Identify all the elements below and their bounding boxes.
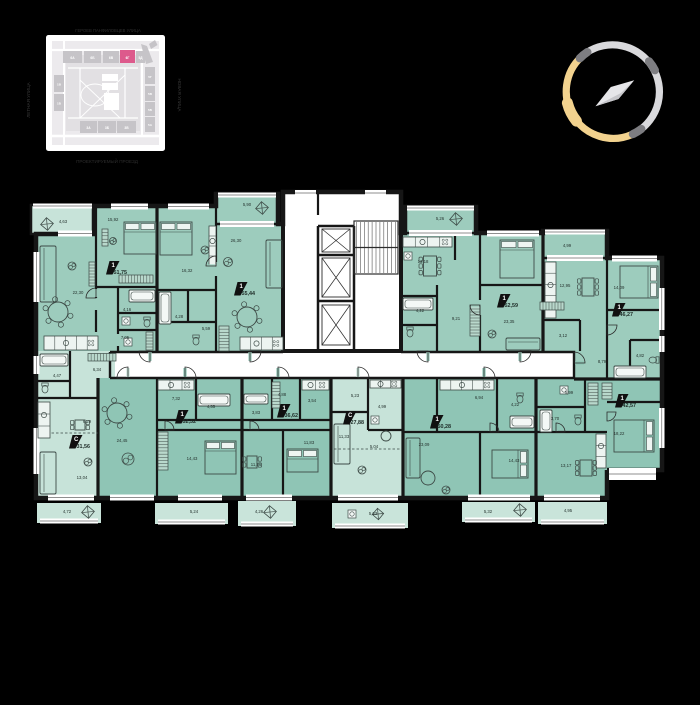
svg-text:ПРОЕКТИРУЕМЫЙ ПРОЕЗД: ПРОЕКТИРУЕМЫЙ ПРОЕЗД [76,157,139,164]
svg-text:С: С [348,413,353,419]
svg-text:3Б: 3Б [105,126,110,130]
svg-text:23,35: 23,35 [504,319,515,324]
svg-text:23,09: 23,09 [419,442,430,447]
svg-text:5,59: 5,59 [202,326,211,331]
svg-text:3А: 3А [86,126,91,130]
svg-text:16,32: 16,32 [182,268,193,273]
svg-text:13,04: 13,04 [77,475,88,480]
svg-text:5,26: 5,26 [436,216,445,221]
svg-text:13,18: 13,18 [418,259,429,264]
svg-text:ЛЕТНАЯ УЛИЦА: ЛЕТНАЯ УЛИЦА [26,81,31,117]
svg-text:5Г: 5Г [148,75,152,79]
svg-text:5,32: 5,32 [484,509,493,514]
svg-text:4,26: 4,26 [255,509,264,514]
svg-text:4,22: 4,22 [416,308,425,313]
svg-text:8,79: 8,79 [598,359,607,364]
svg-text:55,44: 55,44 [242,291,256,297]
svg-text:9,21: 9,21 [452,316,461,321]
svg-text:4,72: 4,72 [63,509,72,514]
svg-text:5,90: 5,90 [243,202,252,207]
svg-text:5,99: 5,99 [565,390,574,395]
svg-text:6Б: 6Б [90,56,95,60]
svg-text:5,63: 5,63 [369,511,378,516]
svg-text:6А: 6А [70,56,75,60]
svg-text:4,95: 4,95 [564,508,573,513]
svg-text:7,05: 7,05 [121,335,130,340]
svg-text:3,12: 3,12 [559,333,568,338]
svg-text:НОВАЯ УЛИЦА: НОВАЯ УЛИЦА [177,78,182,112]
svg-text:4,82: 4,82 [636,353,645,358]
svg-text:4,16: 4,16 [123,307,132,312]
svg-text:50,28: 50,28 [438,424,452,430]
svg-text:4,28: 4,28 [175,314,184,319]
svg-text:4,88: 4,88 [278,392,287,397]
svg-text:15,92: 15,92 [108,217,119,222]
svg-text:3,54: 3,54 [308,398,317,403]
svg-text:3,70: 3,70 [551,416,560,421]
svg-text:18,22: 18,22 [614,431,625,436]
svg-text:С: С [74,437,79,443]
svg-text:46,27: 46,27 [620,312,634,318]
svg-text:4,99: 4,99 [563,243,572,248]
svg-text:4,55: 4,55 [207,404,216,409]
svg-text:4,47: 4,47 [53,373,62,378]
svg-text:11,83: 11,83 [304,440,315,445]
svg-text:14,43: 14,43 [187,456,198,461]
svg-text:6,94: 6,94 [475,395,484,400]
svg-text:4,99: 4,99 [378,404,387,409]
svg-text:3В: 3В [124,126,129,130]
svg-text:14,43: 14,43 [509,458,520,463]
svg-text:27,88: 27,88 [351,420,365,426]
svg-text:14,09: 14,09 [614,285,625,290]
svg-text:51,75: 51,75 [114,270,128,276]
svg-text:4,22: 4,22 [511,402,520,407]
svg-text:42,57: 42,57 [623,403,637,409]
svg-text:31,56: 31,56 [77,444,91,450]
svg-text:4,63: 4,63 [59,219,68,224]
svg-text:6,29: 6,29 [83,419,92,424]
svg-text:13,17: 13,17 [561,463,572,468]
svg-text:52,32: 52,32 [183,419,197,425]
svg-text:24,45: 24,45 [117,438,128,443]
svg-text:36,62: 36,62 [285,413,299,419]
svg-text:7,32: 7,32 [172,396,181,401]
svg-text:6В: 6В [109,56,114,60]
svg-text:26,30: 26,30 [231,238,242,243]
svg-text:5,04: 5,04 [370,444,379,449]
svg-text:11,33: 11,33 [339,434,350,439]
svg-text:5,23: 5,23 [351,393,360,398]
svg-text:5,24: 5,24 [190,509,199,514]
svg-text:22,30: 22,30 [73,290,84,295]
svg-text:12,95: 12,95 [560,283,571,288]
svg-text:52,59: 52,59 [505,303,519,309]
svg-text:11,26: 11,26 [251,462,262,467]
svg-text:6,34: 6,34 [93,367,102,372]
svg-text:6Г: 6Г [126,56,130,60]
svg-text:3,83: 3,83 [252,410,261,415]
svg-text:ГЕРОЕВ ПАНФИЛОВЦЕВ УЛИЦА: ГЕРОЕВ ПАНФИЛОВЦЕВ УЛИЦА [75,28,141,33]
